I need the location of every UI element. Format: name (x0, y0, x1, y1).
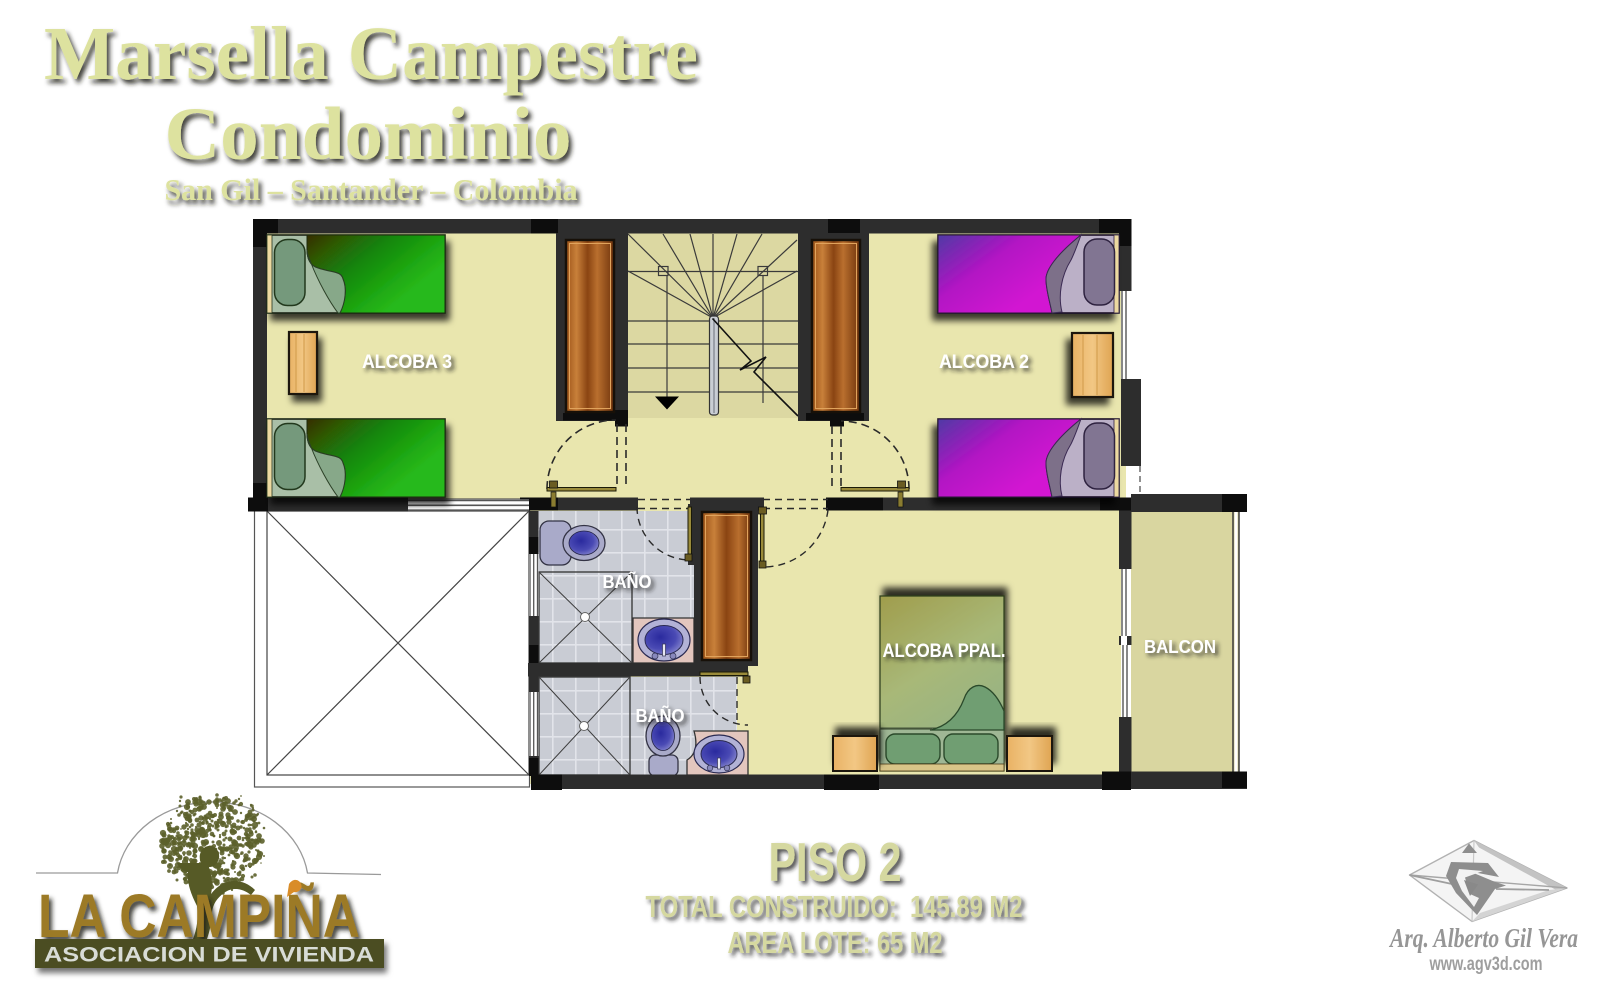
svg-text:PISO 2: PISO 2 (769, 831, 902, 893)
svg-text:BAÑO: BAÑO (603, 571, 652, 592)
svg-text:Marsella Campestre: Marsella Campestre (44, 12, 698, 96)
svg-text:Arq. Alberto Gil Vera: Arq. Alberto Gil Vera (1388, 923, 1578, 953)
svg-text:www.agv3d.com: www.agv3d.com (1429, 954, 1543, 975)
svg-text:San Gil – Santander – Colombia: San Gil – Santander – Colombia (165, 172, 578, 207)
svg-text:AREA LOTE: 65 M2: AREA LOTE: 65 M2 (728, 925, 943, 960)
svg-text:ALCOBA 3: ALCOBA 3 (362, 352, 452, 373)
svg-text:ALCOBA 2: ALCOBA 2 (939, 352, 1029, 373)
svg-text:Condominio: Condominio (165, 93, 572, 176)
svg-text:ALCOBA PPAL.: ALCOBA PPAL. (883, 641, 1006, 662)
svg-text:ASOCIACION DE VIVIENDA: ASOCIACION DE VIVIENDA (44, 944, 374, 967)
svg-text:TOTAL CONSTRUIDO: 145.89 M2: TOTAL CONSTRUIDO: 145.89 M2 (646, 889, 1023, 924)
svg-text:BAÑO: BAÑO (636, 705, 685, 726)
svg-text:BALCON: BALCON (1144, 637, 1216, 657)
